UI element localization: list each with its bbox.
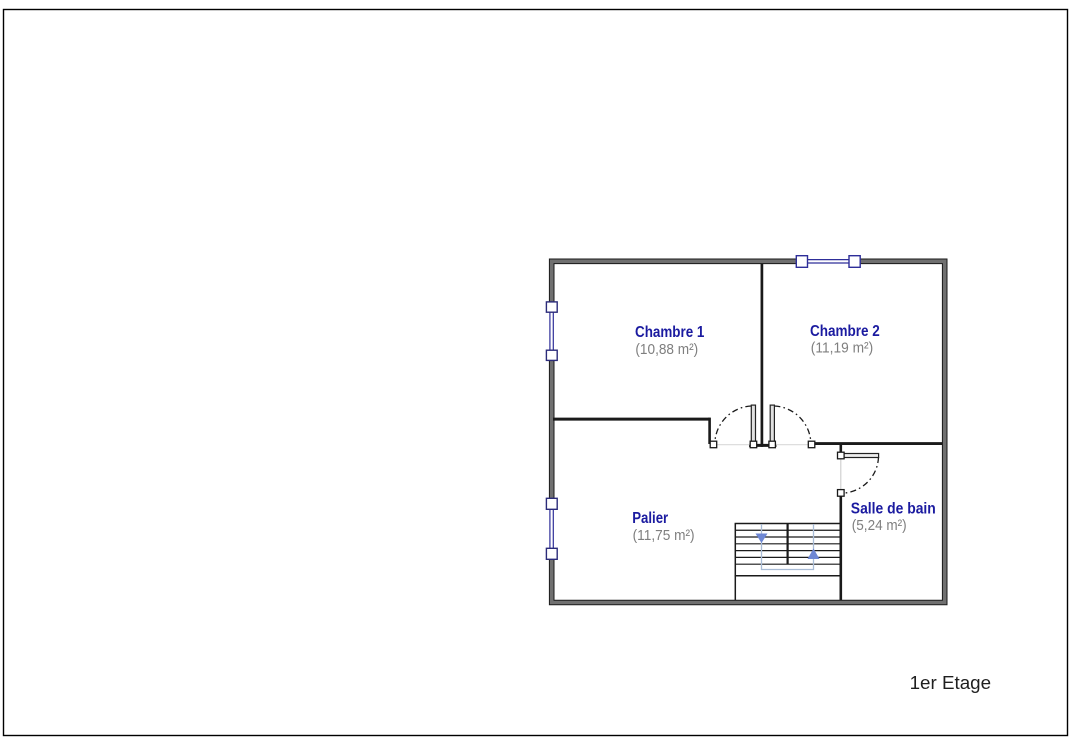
svg-text:(10,88 m²): (10,88 m²) bbox=[635, 341, 698, 358]
svg-text:Palier: Palier bbox=[632, 510, 668, 527]
svg-text:(5,24 m²): (5,24 m²) bbox=[852, 517, 907, 534]
svg-text:(11,75 m²): (11,75 m²) bbox=[633, 527, 695, 544]
svg-text:Salle de bain: Salle de bain bbox=[851, 501, 936, 518]
svg-text:Chambre 2: Chambre 2 bbox=[810, 323, 880, 340]
svg-text:Chambre 1: Chambre 1 bbox=[635, 324, 705, 341]
svg-text:(11,19 m²): (11,19 m²) bbox=[811, 339, 873, 356]
svg-text:1er Etage: 1er Etage bbox=[910, 673, 992, 693]
